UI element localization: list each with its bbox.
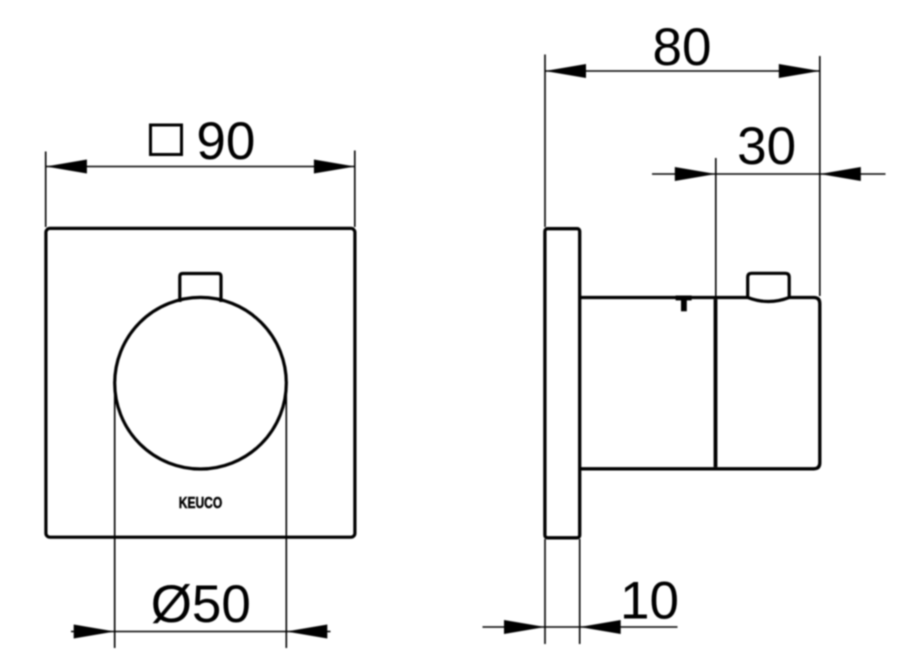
svg-text:KEUCO: KEUCO xyxy=(179,495,223,512)
svg-text:10: 10 xyxy=(620,572,679,631)
svg-text:80: 80 xyxy=(653,18,712,77)
svg-text:30: 30 xyxy=(737,117,796,176)
svg-text:Ø50: Ø50 xyxy=(151,575,251,634)
svg-text:90: 90 xyxy=(196,112,255,171)
